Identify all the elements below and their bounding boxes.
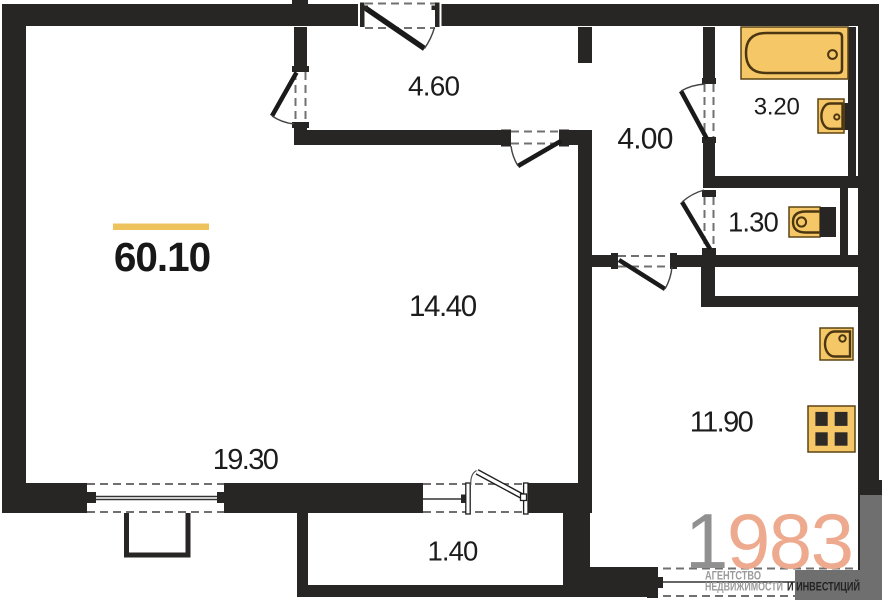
svg-text:3.20: 3.20 xyxy=(754,94,800,121)
svg-text:1.40: 1.40 xyxy=(428,536,479,567)
svg-text:14.40: 14.40 xyxy=(409,290,477,323)
svg-text:И ИНВЕСТИЦИЙ: И ИНВЕСТИЦИЙ xyxy=(787,579,860,594)
svg-text:60.10: 60.10 xyxy=(114,234,210,280)
svg-text:4.60: 4.60 xyxy=(408,71,460,102)
svg-text:1.30: 1.30 xyxy=(728,207,779,238)
svg-text:НЕДВИЖИМОСТИ: НЕДВИЖИМОСТИ xyxy=(705,580,783,594)
svg-text:19.30: 19.30 xyxy=(213,444,278,476)
svg-text:4.00: 4.00 xyxy=(617,123,672,156)
svg-text:11.90: 11.90 xyxy=(690,406,753,438)
